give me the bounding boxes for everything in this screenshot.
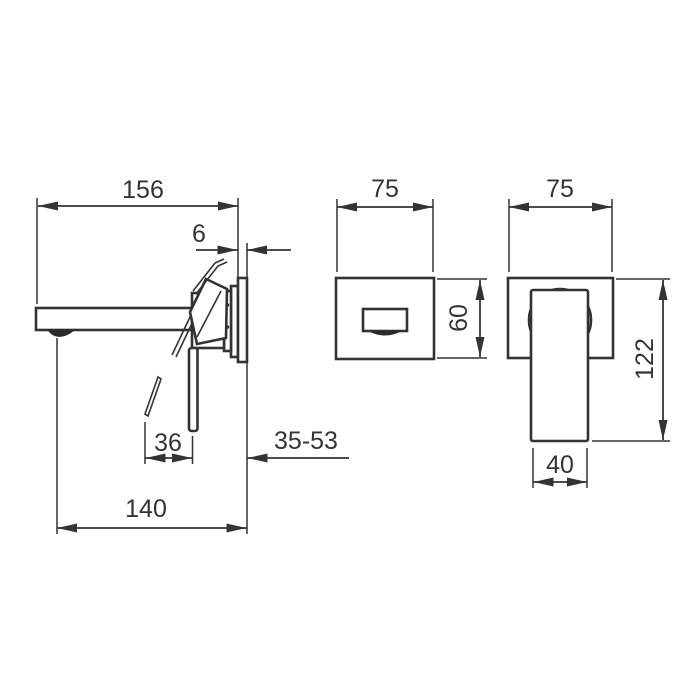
aerator-side <box>47 329 73 337</box>
arrowhead-icon <box>659 280 668 300</box>
technical-drawing-page: 156 6 36 35-53 140 75 <box>0 0 700 700</box>
dim-label-install-depth: 35-53 <box>274 427 338 455</box>
arrowhead-icon <box>38 202 58 211</box>
dim-label-plate-height: 60 <box>445 304 473 332</box>
lever-tilted-tip <box>145 377 161 416</box>
arrowhead-icon <box>248 454 268 463</box>
spout-front-view: 75 60 <box>336 175 487 359</box>
arrowhead-icon <box>413 203 433 212</box>
dim-label-handle-width: 40 <box>546 451 574 479</box>
faucet-dimension-drawing: 156 6 36 35-53 140 75 <box>0 0 700 700</box>
arrowhead-icon <box>592 203 612 212</box>
wall-plate-side <box>238 278 247 362</box>
dim-label-plate-width: 75 <box>371 175 399 203</box>
dim-label-spout-reach: 156 <box>122 176 164 204</box>
arrowhead-icon <box>337 203 357 212</box>
dim-label-overall-height: 122 <box>631 338 659 380</box>
dim-label-lever-travel: 36 <box>154 429 182 457</box>
arrowhead-icon <box>476 280 485 300</box>
arrowhead-icon <box>509 203 529 212</box>
dim-label-spout-length: 140 <box>125 495 167 523</box>
lever-down-bar <box>189 348 198 431</box>
arrowhead-icon <box>218 202 238 211</box>
side-view: 156 6 36 35-53 140 <box>36 176 349 534</box>
arrowhead-icon <box>247 246 267 255</box>
spout-side <box>36 308 193 330</box>
handle-front-view: 75 122 40 <box>508 175 670 488</box>
dim-label-plate-thickness: 6 <box>192 220 206 248</box>
spout-front <box>363 309 407 331</box>
handle-grip-front <box>531 290 588 441</box>
arrowhead-icon <box>227 524 247 533</box>
arrowhead-icon <box>659 420 668 440</box>
arrowhead-icon <box>218 246 238 255</box>
dim-label-hplate-width: 75 <box>546 175 574 203</box>
arrowhead-icon <box>57 524 77 533</box>
arrowhead-icon <box>476 337 485 357</box>
